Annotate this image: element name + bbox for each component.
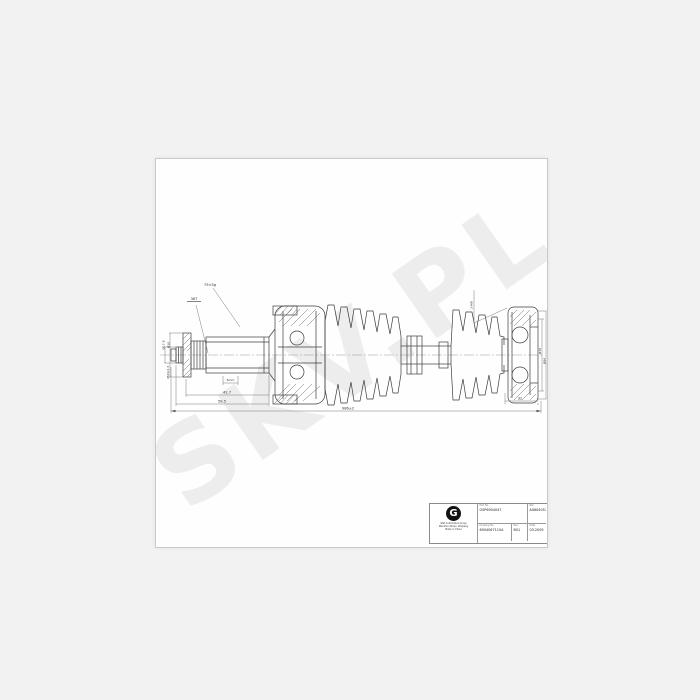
- ref-number-value: A0604057: [530, 508, 545, 513]
- dim-length-a: 42.7: [223, 391, 231, 395]
- logo-letter: G: [449, 509, 457, 519]
- revision-cell: Rev. B01: [511, 523, 527, 541]
- dim-left-dia-small: Ø17.8: [161, 340, 166, 349]
- part-number-cell: Part No. GSP6904047: [478, 504, 527, 523]
- drawing-sheet: SKV.PL: [155, 158, 548, 548]
- dim-right-dia-2: Ø84: [542, 358, 547, 364]
- dim-thread-label: M24x1.5: [166, 365, 170, 378]
- dim-overall-length: 986±2: [342, 407, 354, 411]
- ref-number-cell: Ref. A0604057: [527, 504, 546, 523]
- dim-right-dia-1: Ø79: [537, 348, 542, 354]
- date-value: 03.2009: [530, 528, 545, 533]
- company-address: GSP Automotive Group Wenzhou Ruian, Zhej…: [439, 523, 468, 532]
- title-block-company-cell: G GSP Automotive Group Wenzhou Ruian, Zh…: [430, 504, 478, 543]
- drawing-number-cell: Drawing No. 6904067110A: [478, 523, 511, 541]
- title-block: G GSP Automotive Group Wenzhou Ruian, Zh…: [429, 503, 548, 544]
- drawing-number-value: 6904067110A: [480, 528, 510, 533]
- part-number-value: GSP6904047: [480, 508, 526, 513]
- date-cell: Date 03.2009: [527, 523, 546, 541]
- dim-right-length: 32: [518, 397, 523, 401]
- revision-value: B01: [514, 528, 526, 533]
- company-line: Made in China: [439, 529, 468, 532]
- dimension-lines: [164, 288, 547, 413]
- dim-length-b: 58.5: [218, 400, 226, 404]
- dim-holes-label: 2-M8: [470, 301, 474, 309]
- manufacturer-logo-icon: G: [446, 506, 461, 521]
- dim-spline-count: 36T: [191, 297, 199, 301]
- dim-left-dia-mid: Ø30: [166, 342, 171, 348]
- dim-gap-label: 5mm: [227, 378, 235, 382]
- title-block-grid: Part No. GSP6904047 Ref. A0604057 Drawin…: [478, 504, 548, 543]
- dim-weight-label: 75±5g: [204, 283, 216, 287]
- driveshaft-drawing: 75±5g 36T 5mm 42.7 58.5 986±2 32 Ø17.8 Ø…: [156, 159, 547, 547]
- page-background: SKV.PL: [0, 0, 700, 700]
